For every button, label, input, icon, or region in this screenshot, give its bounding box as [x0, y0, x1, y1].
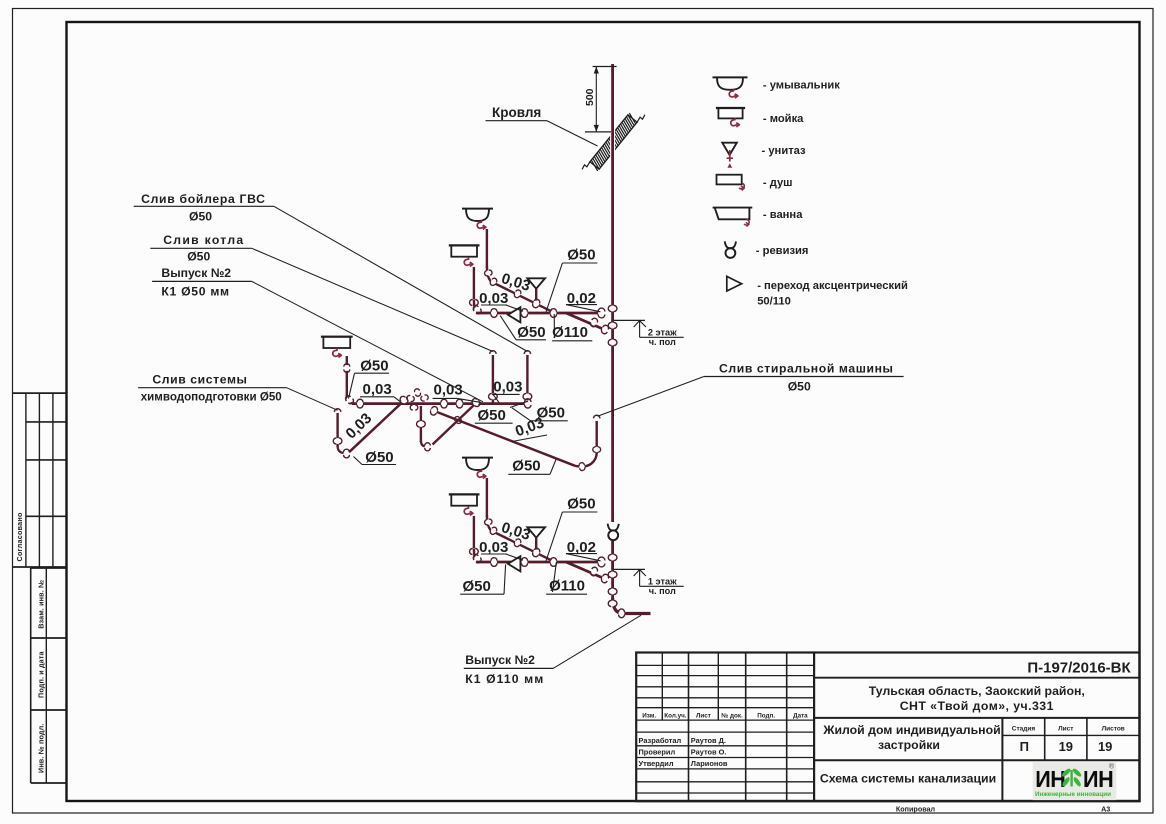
- svg-text:К1 Ø50 мм: К1 Ø50 мм: [161, 285, 229, 299]
- svg-text:- унитаз: - унитаз: [762, 145, 807, 157]
- svg-text:50/110: 50/110: [757, 296, 791, 308]
- svg-text:Листов: Листов: [1102, 725, 1125, 732]
- svg-text:Тульская область, Заокский рай: Тульская область, Заокский район,: [869, 684, 1085, 698]
- svg-text:Кол.уч.: Кол.уч.: [664, 712, 686, 719]
- svg-text:Раутов Д.: Раутов Д.: [691, 736, 726, 745]
- svg-text:Ø50: Ø50: [567, 496, 595, 513]
- svg-text:Утвердил: Утвердил: [639, 759, 674, 768]
- svg-text:- мойка: - мойка: [763, 113, 804, 125]
- svg-text:Взам. инв. №: Взам. инв. №: [37, 580, 46, 629]
- svg-text:Слив бойлера ГВС: Слив бойлера ГВС: [141, 192, 266, 206]
- svg-text:№ док.: № док.: [721, 712, 743, 719]
- svg-text:Ларионов: Ларионов: [691, 759, 728, 768]
- svg-text:Лист: Лист: [1058, 725, 1073, 732]
- svg-text:Копировал: Копировал: [896, 805, 936, 814]
- svg-text:Проверил: Проверил: [639, 748, 676, 757]
- svg-text:К1 Ø110 мм: К1 Ø110 мм: [465, 672, 544, 686]
- svg-text:ч. пол: ч. пол: [649, 586, 676, 596]
- svg-text:Ø50: Ø50: [189, 210, 212, 224]
- svg-text:Дата: Дата: [793, 712, 808, 719]
- svg-text:Схема системы канализации: Схема системы канализации: [820, 771, 996, 785]
- svg-text:Ø50: Ø50: [365, 449, 393, 466]
- svg-text:®: ®: [1109, 763, 1115, 771]
- svg-text:Ø50: Ø50: [360, 357, 388, 374]
- svg-text:ч. пол: ч. пол: [649, 337, 676, 347]
- svg-text:Инженерные инновации: Инженерные инновации: [1035, 791, 1111, 798]
- svg-text:0,03: 0,03: [493, 379, 522, 396]
- svg-text:- душ: - душ: [763, 177, 793, 189]
- svg-text:застройки: застройки: [878, 738, 940, 752]
- svg-text:Слив системы: Слив системы: [152, 372, 247, 386]
- svg-text:- переход аксцентрический: - переход аксцентрический: [757, 280, 908, 292]
- svg-text:- ревизия: - ревизия: [756, 245, 809, 257]
- svg-text:Слив котла: Слив котла: [163, 233, 244, 247]
- svg-text:0,03: 0,03: [363, 381, 392, 398]
- svg-text:Ø50: Ø50: [517, 324, 545, 341]
- svg-text:СНТ «Твой дом», уч.331: СНТ «Твой дом», уч.331: [900, 699, 1054, 713]
- svg-text:Согласовано: Согласовано: [15, 512, 24, 562]
- svg-text:Раутов О.: Раутов О.: [691, 748, 727, 757]
- svg-text:Лист: Лист: [696, 712, 711, 719]
- svg-text:П: П: [1020, 739, 1029, 754]
- svg-text:Кровля: Кровля: [492, 105, 541, 120]
- svg-text:Выпуск №2: Выпуск №2: [161, 266, 231, 280]
- svg-text:Ø50: Ø50: [567, 247, 595, 264]
- svg-text:- умывальник: - умывальник: [763, 79, 840, 91]
- svg-text:0,03: 0,03: [479, 290, 508, 307]
- svg-text:Подп.: Подп.: [757, 712, 775, 719]
- svg-text:0,03: 0,03: [479, 539, 508, 556]
- svg-text:Ø50: Ø50: [512, 458, 540, 475]
- svg-text:Ø50: Ø50: [463, 578, 491, 595]
- svg-text:Жилой дом индивидуальной: Жилой дом индивидуальной: [822, 723, 1000, 737]
- svg-text:Ø110: Ø110: [552, 324, 588, 341]
- svg-text:А3: А3: [1101, 805, 1110, 814]
- svg-text:Ø50: Ø50: [478, 407, 506, 424]
- svg-text:Подп. и дата: Подп. и дата: [37, 650, 46, 698]
- svg-text:2 этаж: 2 этаж: [648, 327, 677, 337]
- svg-text:Выпуск №2: Выпуск №2: [465, 653, 535, 667]
- svg-text:Стадия: Стадия: [1012, 725, 1036, 732]
- svg-text:19: 19: [1059, 739, 1073, 754]
- svg-text:Разработал: Разработал: [639, 736, 682, 745]
- svg-text:- ванна: - ванна: [763, 209, 803, 221]
- svg-text:Ø50: Ø50: [788, 380, 811, 394]
- svg-text:1 этаж: 1 этаж: [648, 576, 677, 586]
- svg-text:П-197/2016-ВК: П-197/2016-ВК: [1027, 660, 1131, 677]
- svg-text:Слив стиральной машины: Слив стиральной машины: [719, 361, 894, 375]
- svg-text:19: 19: [1098, 739, 1112, 754]
- svg-text:ИН: ИН: [1035, 766, 1065, 792]
- svg-text:Изм.: Изм.: [642, 712, 656, 719]
- svg-text:Ø50: Ø50: [187, 250, 210, 264]
- svg-text:500: 500: [584, 88, 596, 106]
- svg-text:Инв. № подл.: Инв. № подл.: [37, 724, 46, 774]
- svg-text:химводоподготовки Ø50: химводоподготовки Ø50: [141, 391, 282, 404]
